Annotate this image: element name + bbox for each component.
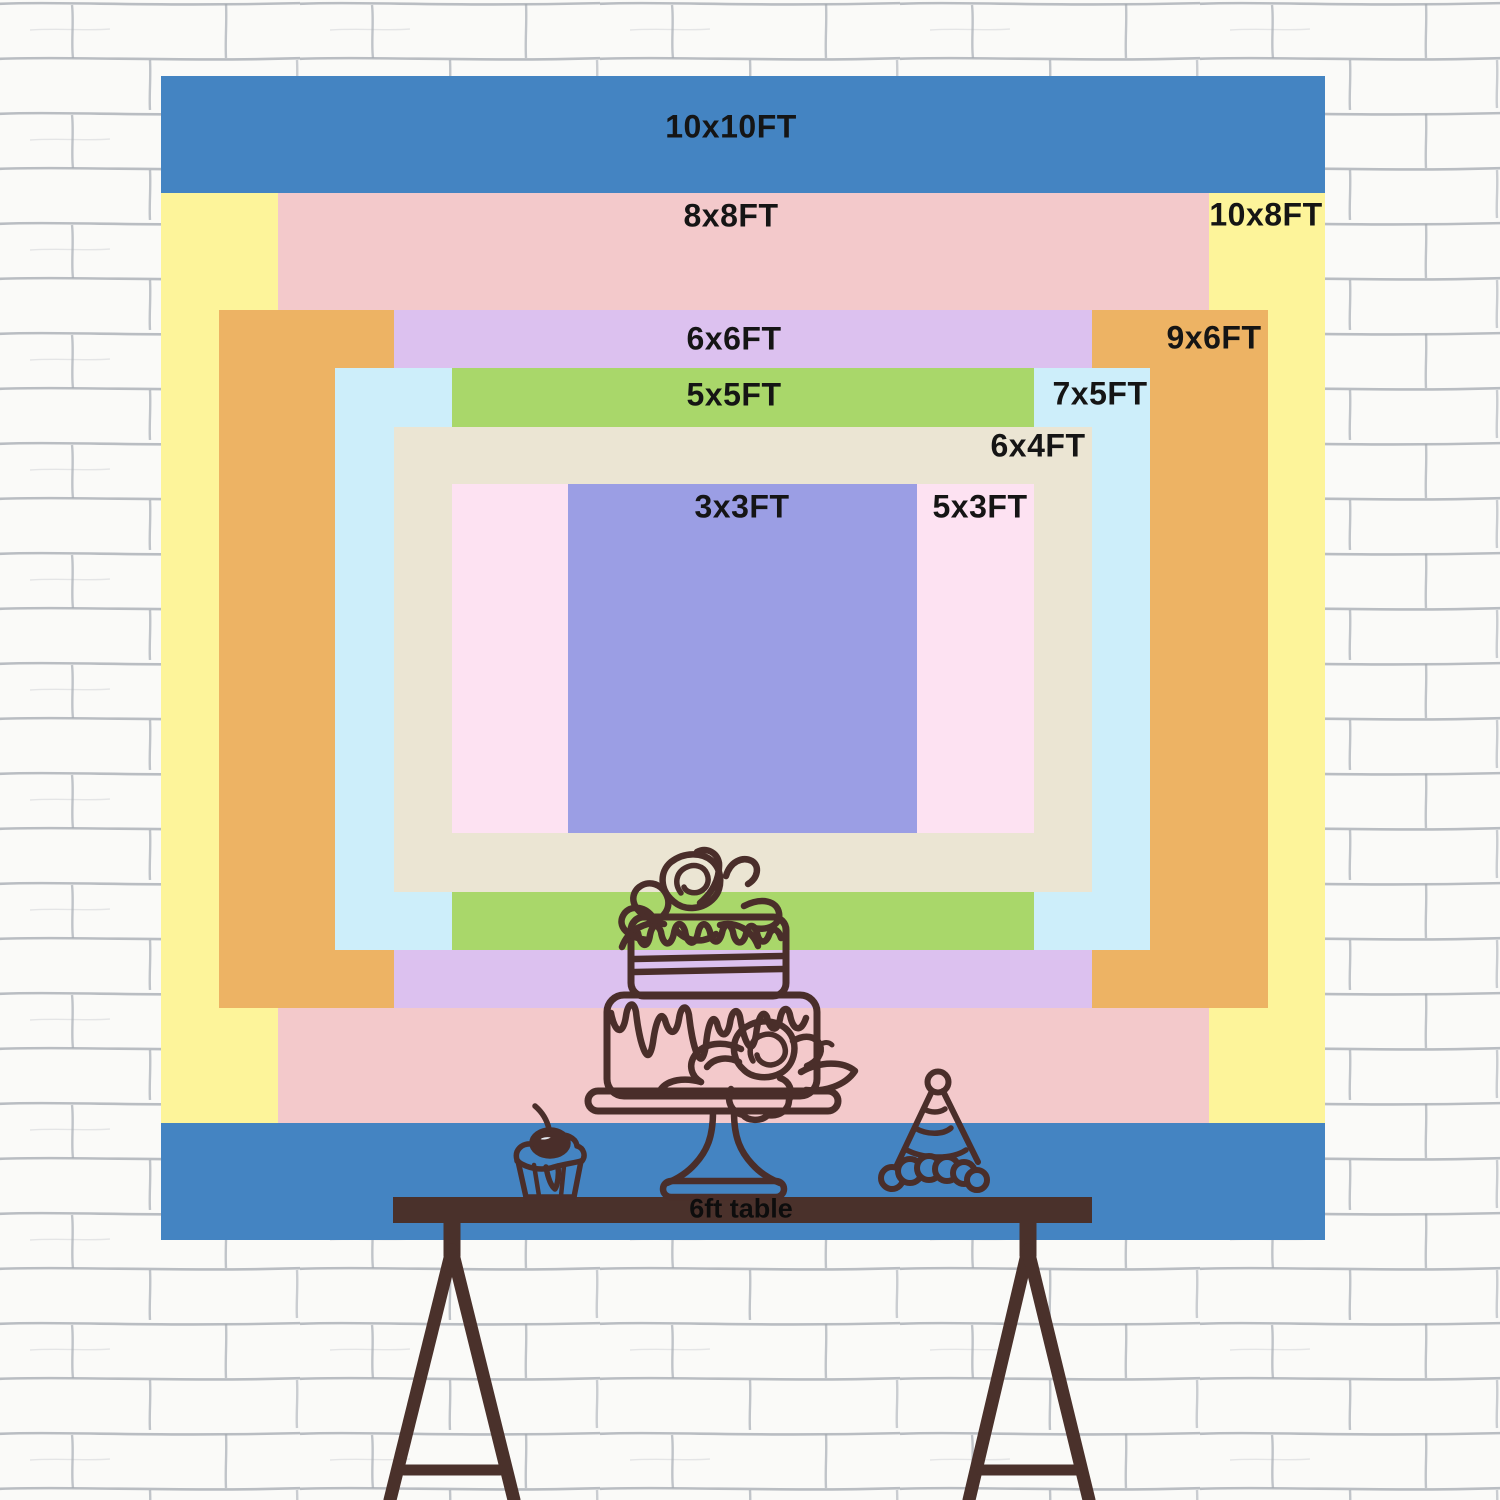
backdrop-size-chart: 10x10FT 10x8FT 8x8FT 9x6FT 6x6FT 7x5FT 5… [0,0,1500,1500]
cupcake-icon [516,1106,584,1197]
party-hat-icon [881,1072,987,1191]
right-trestle-legs [969,1220,1089,1500]
table-label: 6ft table [689,1194,793,1225]
tiered-cake-icon [588,850,855,1197]
left-trestle-legs [390,1220,514,1500]
